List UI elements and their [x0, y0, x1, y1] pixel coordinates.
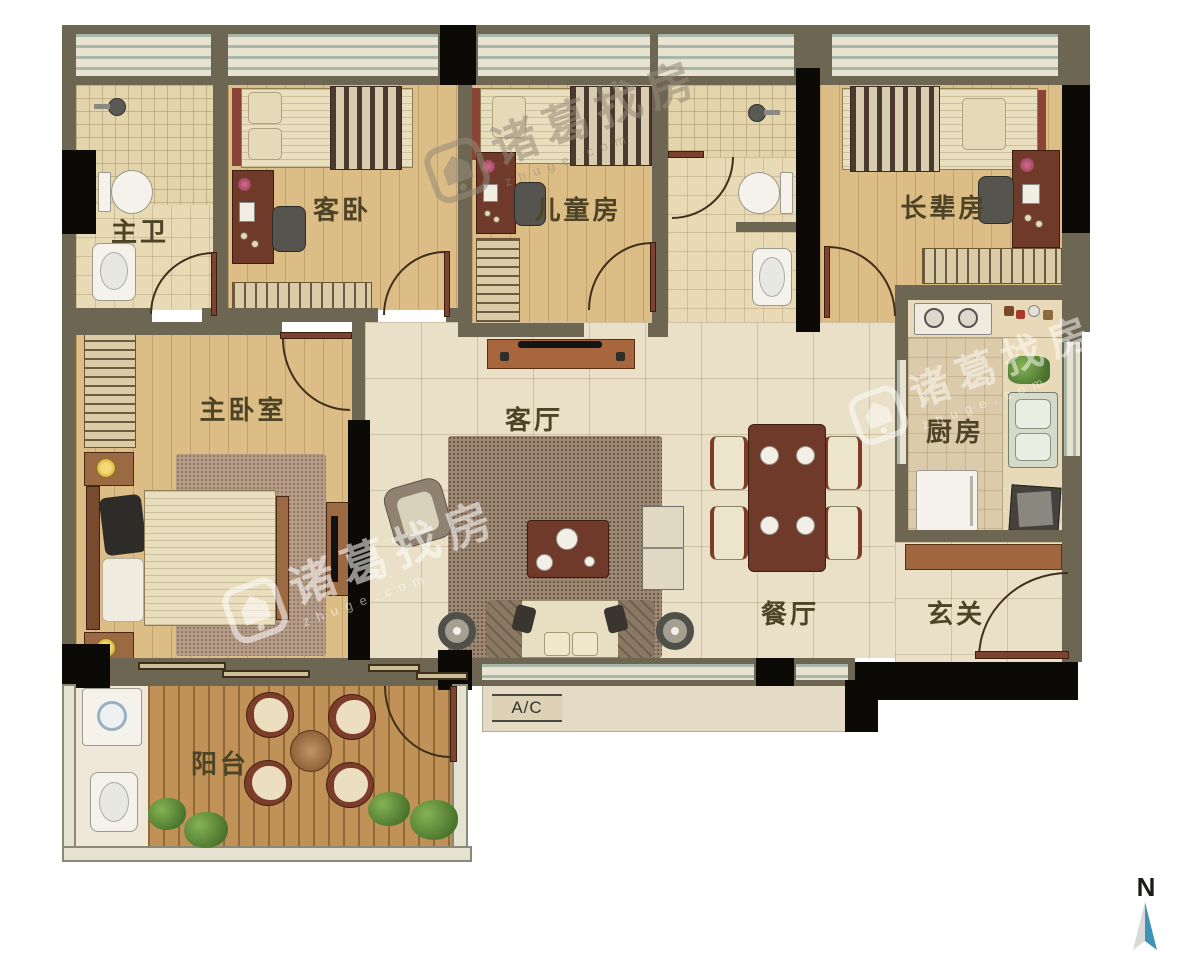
- stove-burner: [924, 308, 944, 328]
- window: [656, 32, 796, 78]
- room-label-master-bedroom: 主卧室: [178, 390, 308, 427]
- sofa-ottoman: [572, 632, 598, 656]
- master-bed-pillow-dark: [99, 494, 148, 557]
- master-tv: [331, 516, 338, 582]
- wall-masterbath-bottom: [62, 308, 152, 322]
- refrigerator-handle: [970, 476, 973, 526]
- kids-desk-cup: [484, 210, 491, 217]
- wall-kitchen-top: [895, 285, 1062, 300]
- kitchen-jar: [1043, 310, 1053, 320]
- dining-plate: [760, 516, 779, 535]
- wall-master-top: [76, 322, 282, 335]
- balcony-chair-seat: [336, 700, 370, 734]
- door-leaf: [824, 246, 830, 318]
- dining-chair: [824, 506, 862, 560]
- tv-speaker: [616, 352, 625, 361]
- floor-bath2-shower: [668, 85, 796, 157]
- master-bed-bench: [276, 496, 289, 620]
- dining-chair: [710, 436, 748, 490]
- shower-head-icon: [108, 98, 126, 116]
- kids-bed-runner: [472, 88, 480, 160]
- guest-bed-pillow: [248, 92, 282, 124]
- toilet-tank: [780, 172, 793, 214]
- kids-wardrobe: [476, 238, 520, 322]
- door-leaf: [668, 151, 704, 158]
- wall-bath-inner: [736, 222, 796, 232]
- elder-desk-cup: [1035, 220, 1043, 228]
- kids-bed-pillow: [492, 96, 526, 138]
- wall-foyer-bottom: [852, 662, 1078, 700]
- sliding-door-living-balcony: [368, 664, 420, 672]
- shoe-cabinet: [905, 544, 1062, 570]
- column: [62, 150, 96, 234]
- kitchen-bowl: [1028, 305, 1040, 317]
- door-leaf: [211, 252, 217, 316]
- door-leaf: [450, 686, 457, 762]
- door-leaf-entry: [975, 651, 1069, 659]
- column: [756, 658, 794, 686]
- coffee-table-plate: [536, 554, 553, 571]
- room-label-guest-bedroom: 客卧: [300, 190, 384, 227]
- dining-table: [748, 424, 826, 572]
- room-label-elder-room: 长辈房: [884, 188, 1004, 225]
- window: [476, 32, 652, 78]
- sofa-ottoman: [544, 632, 570, 656]
- door-leaf: [280, 332, 352, 339]
- room-label-foyer: 玄关: [922, 594, 990, 631]
- kitchen-jar: [1004, 306, 1014, 316]
- washing-machine-drum: [97, 701, 127, 731]
- kids-desk-cup: [493, 216, 500, 223]
- balcony-chair-seat: [254, 698, 288, 732]
- wall-guest-bottom: [228, 308, 378, 322]
- window: [72, 32, 213, 78]
- kitchen-vegetables: [1008, 356, 1050, 384]
- elder-desk-flowers: [1020, 158, 1034, 172]
- elder-bed-runner: [1038, 90, 1046, 158]
- window-living-bottom: [480, 662, 756, 682]
- floor-plan: A/C 主卫 客卧 儿童房 长辈房 主卧室 客厅 厨房 餐厅 玄关 阳台 诸葛找…: [0, 0, 1184, 964]
- column: [845, 680, 878, 732]
- kitchen-sink-basin: [1015, 399, 1051, 429]
- guest-desk-flowers: [238, 178, 251, 191]
- side-cart-divider: [642, 547, 684, 549]
- wall-master-living: [352, 322, 365, 424]
- wall-kitchen-left-a: [895, 300, 908, 358]
- window-kitchen-right: [1062, 340, 1082, 458]
- wall-kids-bottom: [472, 323, 584, 337]
- kids-desk-book: [483, 184, 498, 202]
- bathroom-sink-basin: [100, 252, 128, 290]
- kitchen-mat-inner: [1017, 491, 1053, 527]
- coffee-table-cup: [584, 556, 595, 567]
- elder-desk-cup: [1024, 214, 1032, 222]
- wall-kitchen-bottom: [895, 530, 1062, 542]
- kids-desk-flowers: [482, 160, 495, 173]
- balcony-plant: [184, 812, 228, 848]
- window-living-bottom: [794, 662, 850, 682]
- kids-bed-blanket: [570, 86, 652, 166]
- kitchen-jar: [1016, 310, 1025, 319]
- column: [62, 644, 110, 688]
- shower-arm: [94, 104, 110, 109]
- column: [440, 25, 476, 85]
- sliding-door-kitchen: [895, 358, 908, 466]
- elder-desk-book: [1022, 184, 1040, 204]
- balcony-rail-bottom: [62, 846, 472, 862]
- guest-bed-blanket: [330, 86, 402, 170]
- column: [348, 420, 370, 660]
- room-label-master-bath: 主卫: [106, 212, 174, 249]
- kitchen-sink-basin: [1015, 433, 1051, 461]
- guest-desk-cup: [251, 240, 259, 248]
- balcony-plant: [368, 792, 410, 826]
- wall-guest-kids: [458, 85, 472, 337]
- elder-bed-blanket: [850, 86, 940, 172]
- compass-arrow-icon: [1128, 900, 1164, 952]
- guest-bed-runner: [232, 88, 241, 166]
- window: [226, 32, 440, 78]
- coffee-table-plate: [556, 528, 578, 550]
- sliding-door-master-balcony: [222, 670, 310, 678]
- guest-bed-pillow: [248, 128, 282, 160]
- tv: [518, 341, 602, 348]
- shower-arm: [764, 110, 780, 115]
- dining-plate: [796, 516, 815, 535]
- refrigerator: [916, 470, 978, 532]
- master-bed: [144, 490, 276, 626]
- toilet-tank: [98, 172, 111, 212]
- master-tv-cabinet: [326, 502, 350, 596]
- room-label-balcony: 阳台: [186, 744, 254, 781]
- column: [1062, 85, 1090, 233]
- sliding-door-master-balcony: [138, 662, 226, 670]
- toilet-bowl: [738, 172, 780, 214]
- guest-desk-cup: [240, 232, 248, 240]
- column: [796, 68, 820, 332]
- balcony-chair-seat: [252, 766, 286, 800]
- compass-north-label: N: [1128, 872, 1164, 903]
- ac-unit-label: A/C: [511, 698, 542, 718]
- table-lamp-icon: [96, 458, 116, 478]
- ac-unit-box: A/C: [492, 694, 562, 722]
- door-leaf: [444, 251, 450, 317]
- bathroom-sink-basin: [759, 257, 785, 297]
- stove-burner: [958, 308, 978, 328]
- balcony-sink-basin: [99, 782, 129, 822]
- balcony-plant: [410, 800, 458, 840]
- door-leaf: [650, 242, 656, 312]
- toilet-bowl: [111, 170, 153, 214]
- guest-desk-book: [239, 202, 255, 222]
- room-label-kitchen: 厨房: [920, 412, 990, 449]
- dining-chair: [824, 436, 862, 490]
- dining-plate: [796, 446, 815, 465]
- room-label-kids-room: 儿童房: [518, 190, 638, 227]
- master-bed-headboard: [86, 486, 100, 630]
- round-side-table-dot: [453, 627, 461, 635]
- window: [830, 32, 1060, 78]
- master-wardrobe: [84, 330, 136, 448]
- room-label-living-room: 客厅: [498, 400, 570, 437]
- dining-chair: [710, 506, 748, 560]
- balcony-table: [290, 730, 332, 772]
- wall-left: [62, 25, 76, 685]
- elder-wardrobe: [922, 248, 1062, 284]
- sliding-door-living-balcony: [416, 672, 468, 680]
- balcony-plant: [148, 798, 186, 830]
- room-label-dining-room: 餐厅: [756, 594, 824, 631]
- elder-bed-pillow: [962, 98, 1006, 150]
- round-side-table-dot: [671, 627, 679, 635]
- balcony-rail-left: [62, 684, 76, 862]
- tv-speaker: [500, 352, 509, 361]
- dining-plate: [760, 446, 779, 465]
- master-bed-pillow-white: [102, 558, 144, 622]
